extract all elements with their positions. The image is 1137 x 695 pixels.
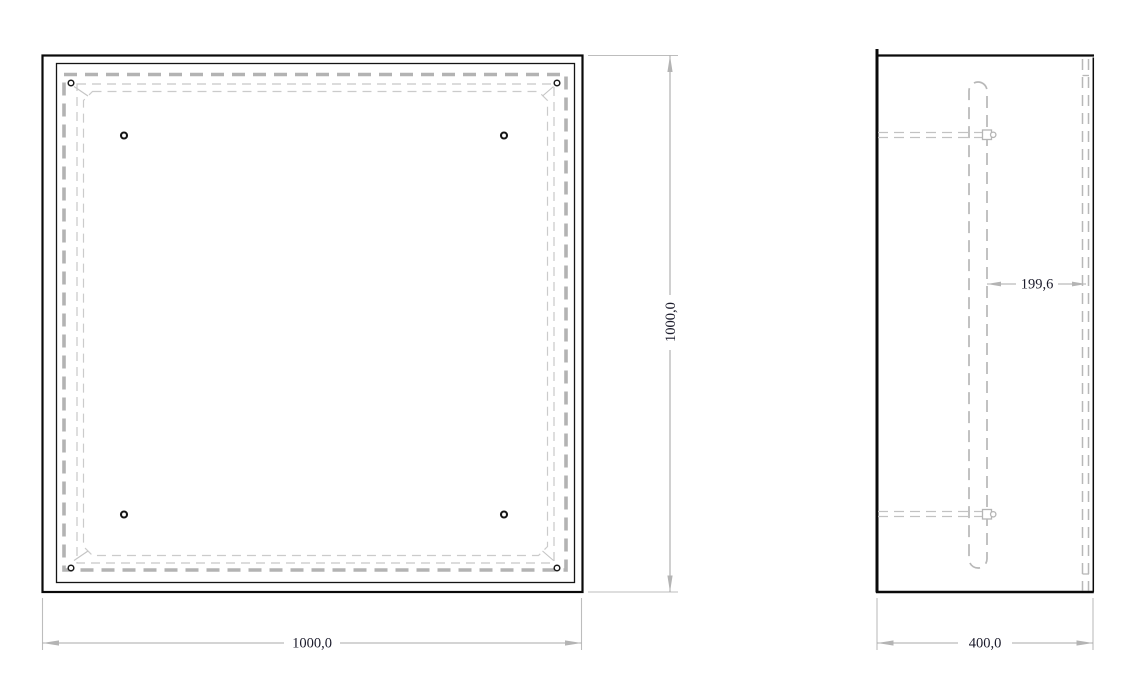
drawing-sheet: 1000,0 1000,0 400,0 (0, 0, 1137, 695)
arrowhead-left (43, 640, 60, 645)
dim-front-height: 1000,0 (588, 56, 679, 593)
mount-hole (501, 133, 507, 139)
mount-hole (501, 512, 507, 518)
dim-label-side-offset: 199,6 (1021, 277, 1054, 293)
side-view (876, 49, 1095, 593)
corner-screw (68, 565, 74, 571)
arrowhead-right (565, 640, 582, 645)
rail-fastener-screw (991, 132, 996, 137)
arrowhead-bottom (667, 576, 672, 593)
corner-screw (554, 80, 560, 86)
mount-hole (121, 512, 127, 518)
dim-label-front-width: 1000,0 (292, 636, 332, 652)
rail-fastener-screw (991, 512, 996, 517)
dim-side-depth: 400,0 (877, 598, 1093, 652)
drawing-canvas: 1000,0 1000,0 400,0 (0, 0, 1137, 695)
dim-front-width: 1000,0 (43, 598, 582, 652)
mount-hole (121, 133, 127, 139)
dim-label-side-depth: 400,0 (969, 636, 1002, 652)
corner-screw (554, 565, 560, 571)
front-view (43, 56, 583, 593)
arrowhead-left (877, 640, 894, 645)
corner-screw (68, 80, 74, 86)
arrowhead-right (1077, 640, 1094, 645)
dim-label-front-height: 1000,0 (663, 302, 679, 342)
arrowhead-top (667, 56, 672, 73)
